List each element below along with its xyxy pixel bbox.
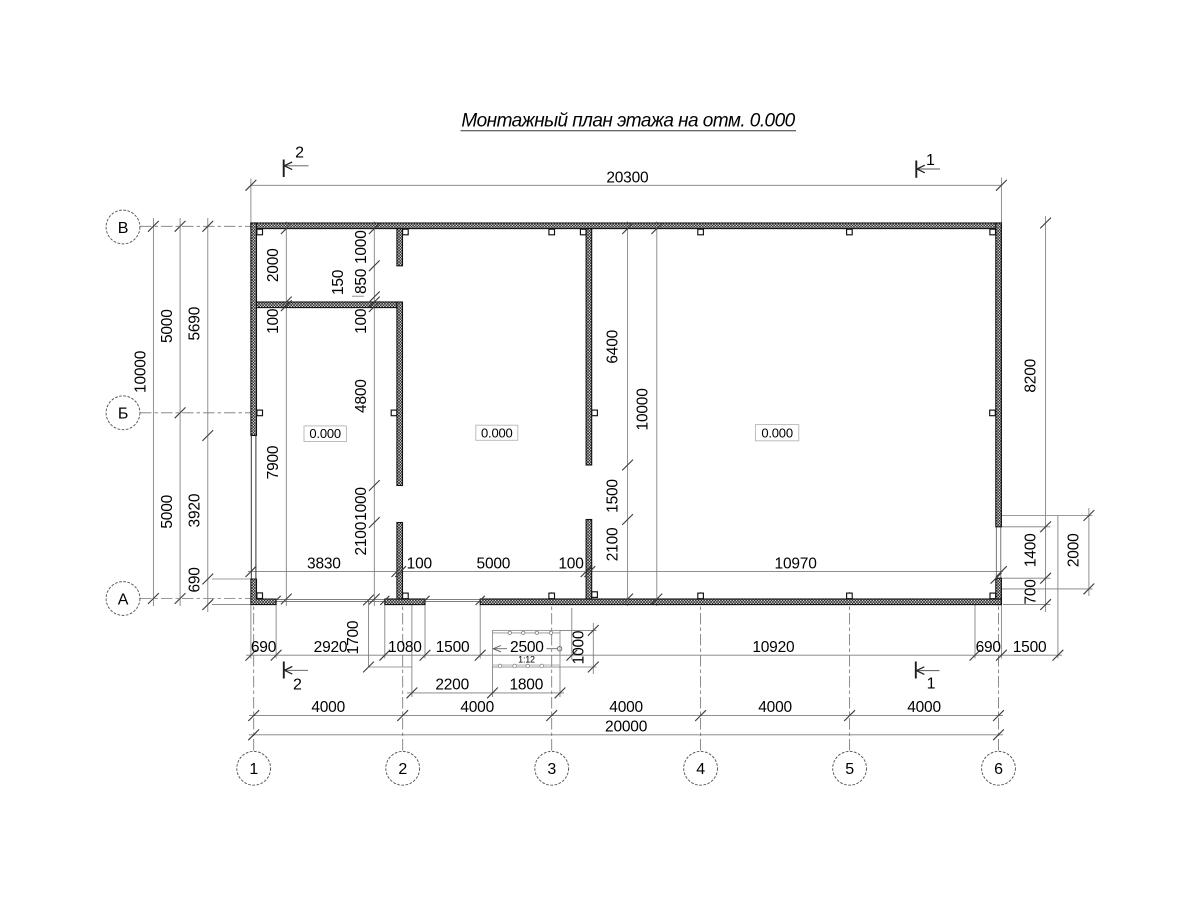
svg-text:10000: 10000	[635, 388, 652, 431]
svg-text:3: 3	[547, 761, 556, 778]
svg-text:3830: 3830	[307, 555, 341, 572]
svg-text:5000: 5000	[159, 309, 176, 343]
svg-text:2: 2	[398, 761, 407, 778]
svg-text:10000: 10000	[133, 350, 150, 393]
svg-text:0.000: 0.000	[309, 426, 341, 441]
svg-text:100: 100	[265, 308, 282, 334]
svg-text:1700: 1700	[345, 620, 362, 654]
svg-text:8200: 8200	[1023, 358, 1040, 392]
svg-text:4000: 4000	[460, 699, 494, 716]
svg-text:690: 690	[976, 639, 1002, 656]
svg-text:3920: 3920	[187, 493, 204, 527]
svg-text:850: 850	[353, 268, 370, 294]
svg-text:100: 100	[407, 555, 433, 572]
svg-text:5690: 5690	[187, 306, 204, 340]
svg-text:5000: 5000	[159, 494, 176, 528]
svg-text:1000: 1000	[353, 487, 370, 521]
svg-text:6400: 6400	[605, 329, 622, 363]
svg-text:А: А	[118, 591, 129, 608]
svg-text:В: В	[118, 220, 128, 237]
svg-text:1800: 1800	[509, 676, 543, 693]
svg-text:1500: 1500	[605, 479, 622, 513]
svg-text:1500: 1500	[1013, 639, 1047, 656]
svg-text:0.000: 0.000	[481, 425, 513, 440]
svg-text:2500: 2500	[510, 639, 544, 656]
svg-text:690: 690	[251, 639, 277, 656]
svg-text:4000: 4000	[758, 699, 792, 716]
svg-text:100: 100	[558, 555, 584, 572]
svg-text:4000: 4000	[907, 699, 941, 716]
svg-text:20000: 20000	[605, 718, 648, 735]
svg-text:10920: 10920	[752, 639, 795, 656]
svg-text:150: 150	[330, 269, 347, 295]
svg-text:4: 4	[696, 761, 705, 778]
svg-text:1400: 1400	[1023, 533, 1040, 567]
svg-text:4000: 4000	[609, 699, 643, 716]
svg-text:20300: 20300	[606, 169, 649, 186]
svg-text:6: 6	[994, 761, 1003, 778]
svg-text:1:12: 1:12	[518, 655, 535, 665]
svg-text:100: 100	[353, 308, 370, 334]
svg-text:2000: 2000	[265, 248, 282, 282]
svg-text:1: 1	[926, 152, 935, 169]
svg-text:2100: 2100	[605, 527, 622, 561]
svg-text:1000: 1000	[571, 630, 588, 664]
svg-text:1000: 1000	[353, 230, 370, 264]
svg-text:2000: 2000	[1066, 533, 1083, 567]
svg-text:2100: 2100	[353, 521, 370, 555]
svg-text:5: 5	[845, 761, 854, 778]
svg-text:5000: 5000	[477, 555, 511, 572]
svg-text:Монтажный план этажа на отм. 0: Монтажный план этажа на отм. 0.000	[461, 111, 795, 132]
svg-text:7900: 7900	[265, 445, 282, 479]
svg-text:690: 690	[187, 567, 204, 593]
svg-text:1500: 1500	[436, 639, 470, 656]
svg-text:1: 1	[249, 761, 258, 778]
svg-text:4000: 4000	[311, 699, 345, 716]
svg-text:2: 2	[295, 145, 304, 162]
svg-text:2200: 2200	[435, 676, 469, 693]
svg-text:2920: 2920	[314, 639, 348, 656]
svg-text:2: 2	[293, 677, 302, 694]
svg-text:1: 1	[927, 676, 936, 693]
svg-text:4800: 4800	[353, 379, 370, 413]
svg-text:10970: 10970	[775, 555, 818, 572]
svg-text:0.000: 0.000	[761, 426, 793, 441]
svg-text:700: 700	[1023, 579, 1040, 605]
svg-text:1080: 1080	[388, 639, 422, 656]
svg-text:Б: Б	[118, 406, 128, 423]
